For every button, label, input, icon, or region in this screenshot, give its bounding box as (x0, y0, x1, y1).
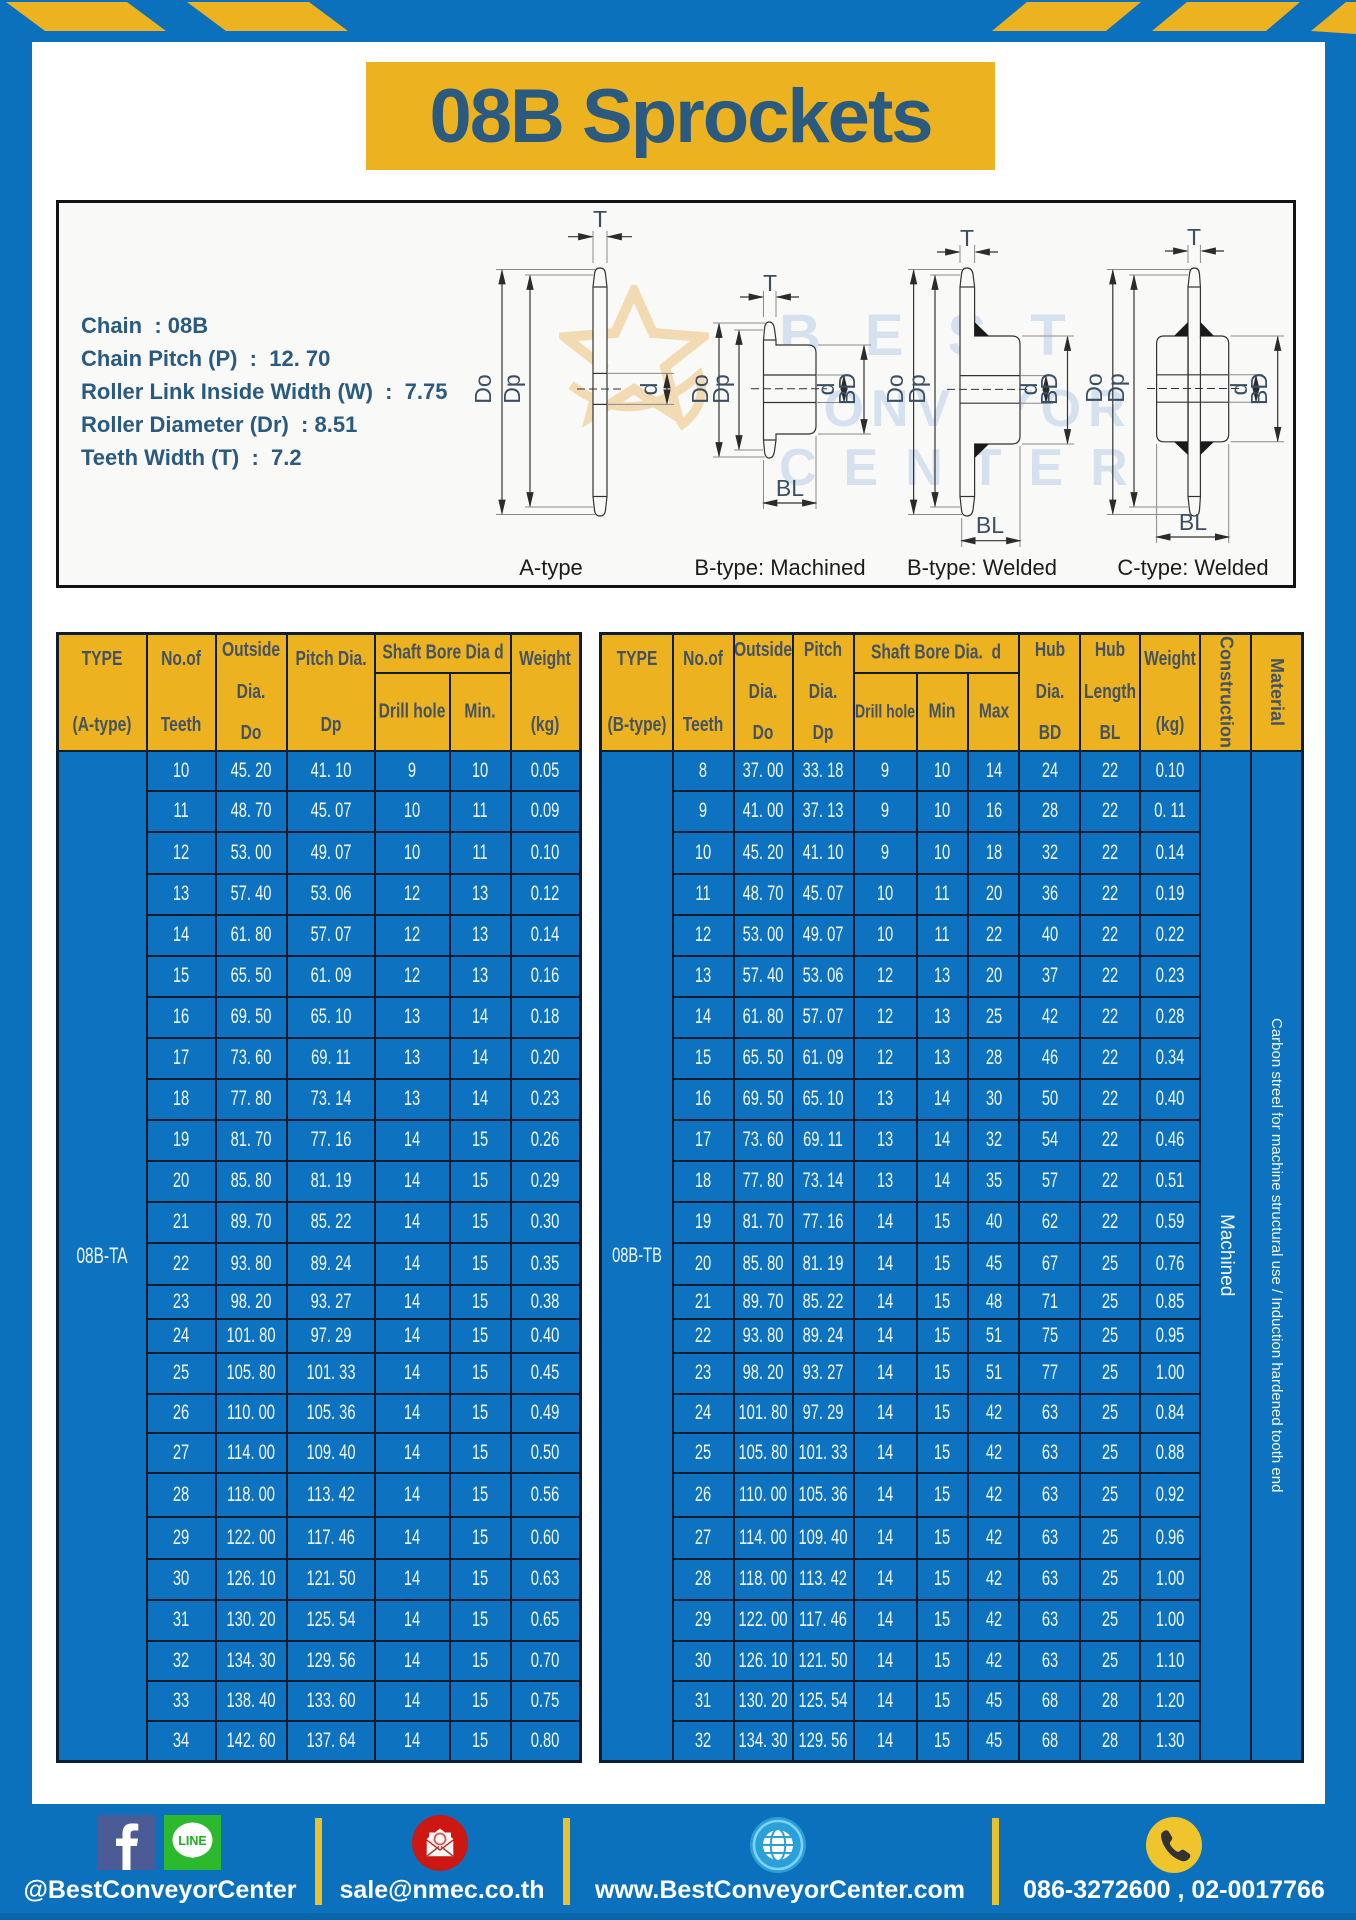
svg-text:T: T (763, 270, 777, 296)
svg-text:Dp: Dp (1103, 373, 1129, 402)
svg-text:BL: BL (976, 512, 1004, 538)
svg-text:BD: BD (1246, 373, 1272, 405)
svg-text:B-type: Welded: B-type: Welded (907, 555, 1057, 580)
svg-text:BD: BD (834, 373, 860, 405)
svg-text:Dp: Dp (904, 374, 930, 403)
svg-text:BL: BL (776, 475, 804, 501)
svg-text:T: T (1187, 224, 1201, 250)
svg-text:Dp: Dp (708, 374, 734, 403)
svg-text:d: d (636, 383, 662, 396)
svg-text:T: T (593, 206, 607, 232)
svg-text:T: T (960, 225, 974, 251)
svg-text:BD: BD (1036, 373, 1062, 405)
svg-text:LINE: LINE (178, 1834, 206, 1848)
svg-text:B-type: Machined: B-type: Machined (694, 555, 865, 580)
svg-text:Dp: Dp (499, 374, 525, 403)
svg-text:C-type: Welded: C-type: Welded (1117, 555, 1268, 580)
svg-text:Do: Do (470, 374, 496, 403)
svg-text:BL: BL (1179, 509, 1207, 535)
svg-text:A-type: A-type (519, 555, 583, 580)
